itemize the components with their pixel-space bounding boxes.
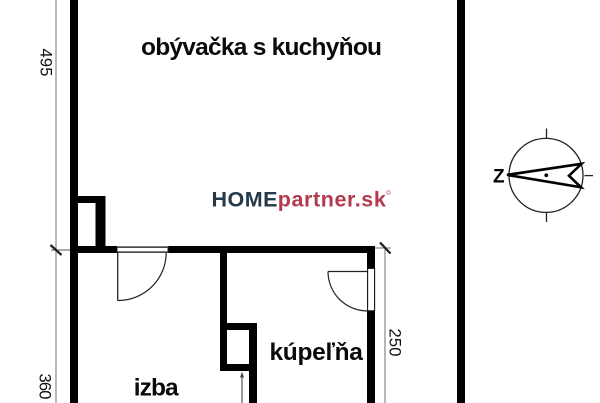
svg-text:250: 250 (385, 329, 403, 357)
svg-text:kúpeľňa: kúpeľňa (269, 339, 363, 366)
svg-text:izba: izba (134, 375, 179, 402)
svg-text:obývačka s kuchyňou: obývačka s kuchyňou (141, 34, 382, 61)
svg-text:Z: Z (493, 167, 505, 188)
svg-text:partner.sk: partner.sk (278, 188, 386, 212)
svg-text:495: 495 (36, 49, 54, 77)
svg-text:360: 360 (36, 374, 54, 400)
svg-text:HOME: HOME (212, 188, 278, 212)
